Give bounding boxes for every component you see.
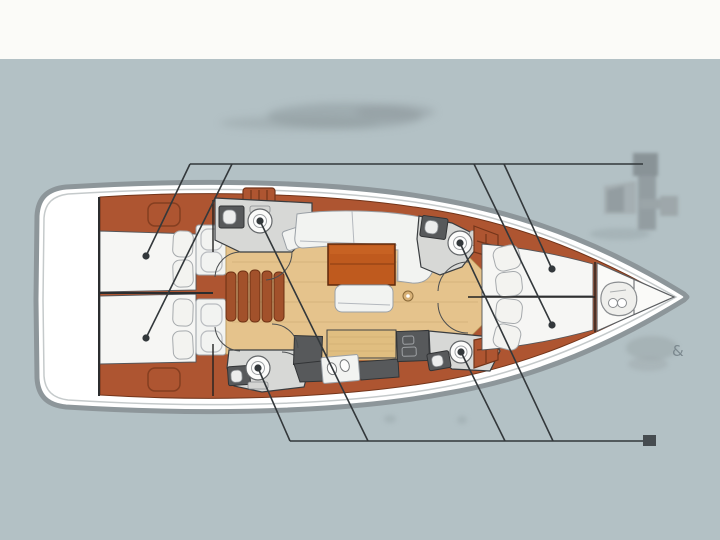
pillow: [173, 299, 194, 327]
ampersand-watermark: &: [672, 342, 684, 360]
callout-dot-forward-starboard-head-toilet: [457, 348, 464, 355]
callout-dot-forward-cabin-starboard-berth: [548, 321, 555, 328]
pillow: [172, 230, 193, 257]
top-white-band: [0, 0, 720, 59]
callout-dot-aft-cabin-port-berth: [142, 252, 149, 259]
callout-dot-port-head-toilet: [256, 217, 263, 224]
salon-bench: [335, 285, 393, 312]
table-highlight: [330, 246, 393, 254]
floorplan-canvas: &: [0, 0, 720, 540]
callout-dot-starboard-head-toilet: [254, 364, 261, 371]
callout-end-marker: [643, 435, 656, 446]
callout-dot-forward-cabin-port-berth: [548, 265, 555, 272]
pillow: [495, 298, 523, 325]
galley-counter-dark-mid: [356, 359, 399, 380]
sink-icon: [427, 350, 452, 371]
sink-icon: [219, 206, 244, 228]
toilet-icon: [246, 356, 270, 389]
stove-icon: [396, 330, 429, 361]
yacht-floorplan-diagram: &: [0, 0, 720, 540]
pillow: [172, 330, 193, 359]
sink-icon: [420, 215, 449, 239]
callout-dot-forward-port-head-toilet: [456, 239, 463, 246]
callout-dot-aft-cabin-starboard-berth: [142, 334, 149, 341]
pillow: [495, 271, 523, 298]
windlass-icon: [601, 282, 637, 316]
